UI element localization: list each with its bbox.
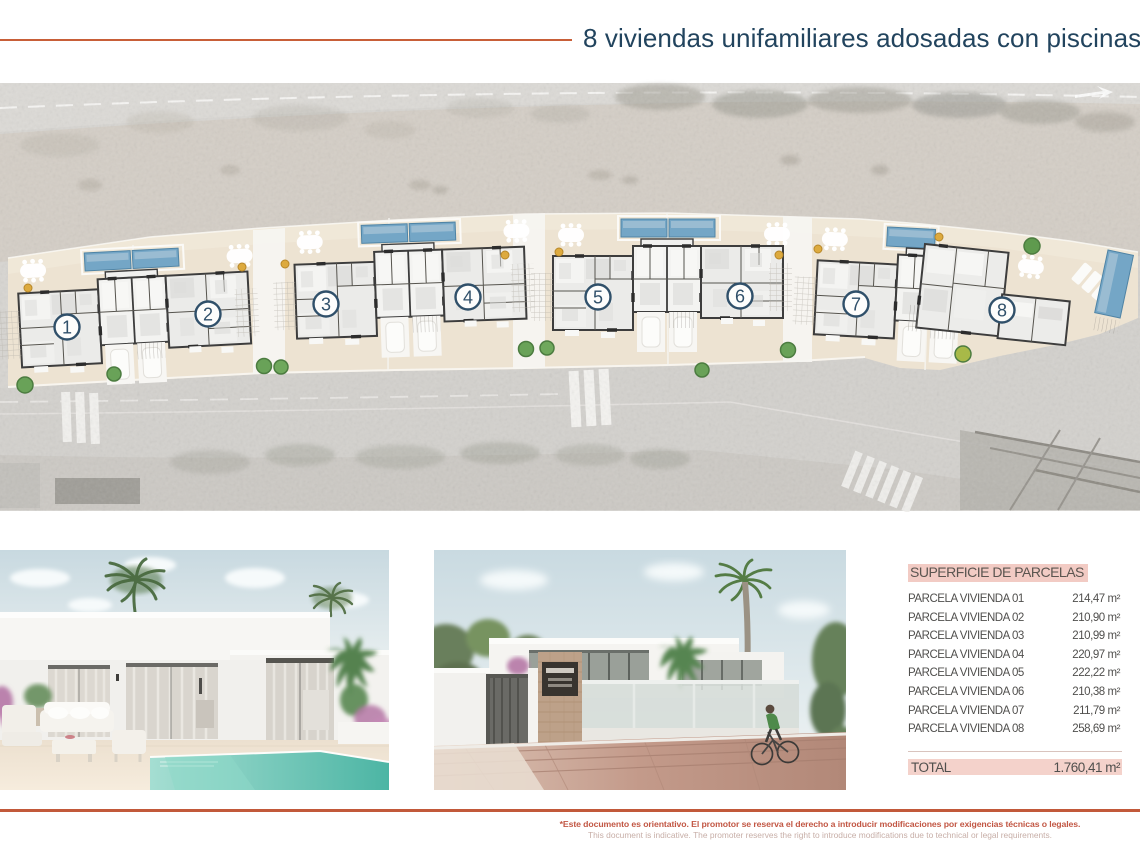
svg-text:5: 5 — [593, 288, 603, 308]
svg-text:1: 1 — [62, 318, 72, 338]
svg-text:7: 7 — [851, 295, 861, 315]
svg-text:4: 4 — [463, 288, 473, 308]
svg-text:6: 6 — [735, 287, 745, 307]
svg-text:8: 8 — [997, 301, 1007, 321]
svg-text:3: 3 — [321, 295, 331, 315]
svg-text:2: 2 — [203, 305, 213, 325]
